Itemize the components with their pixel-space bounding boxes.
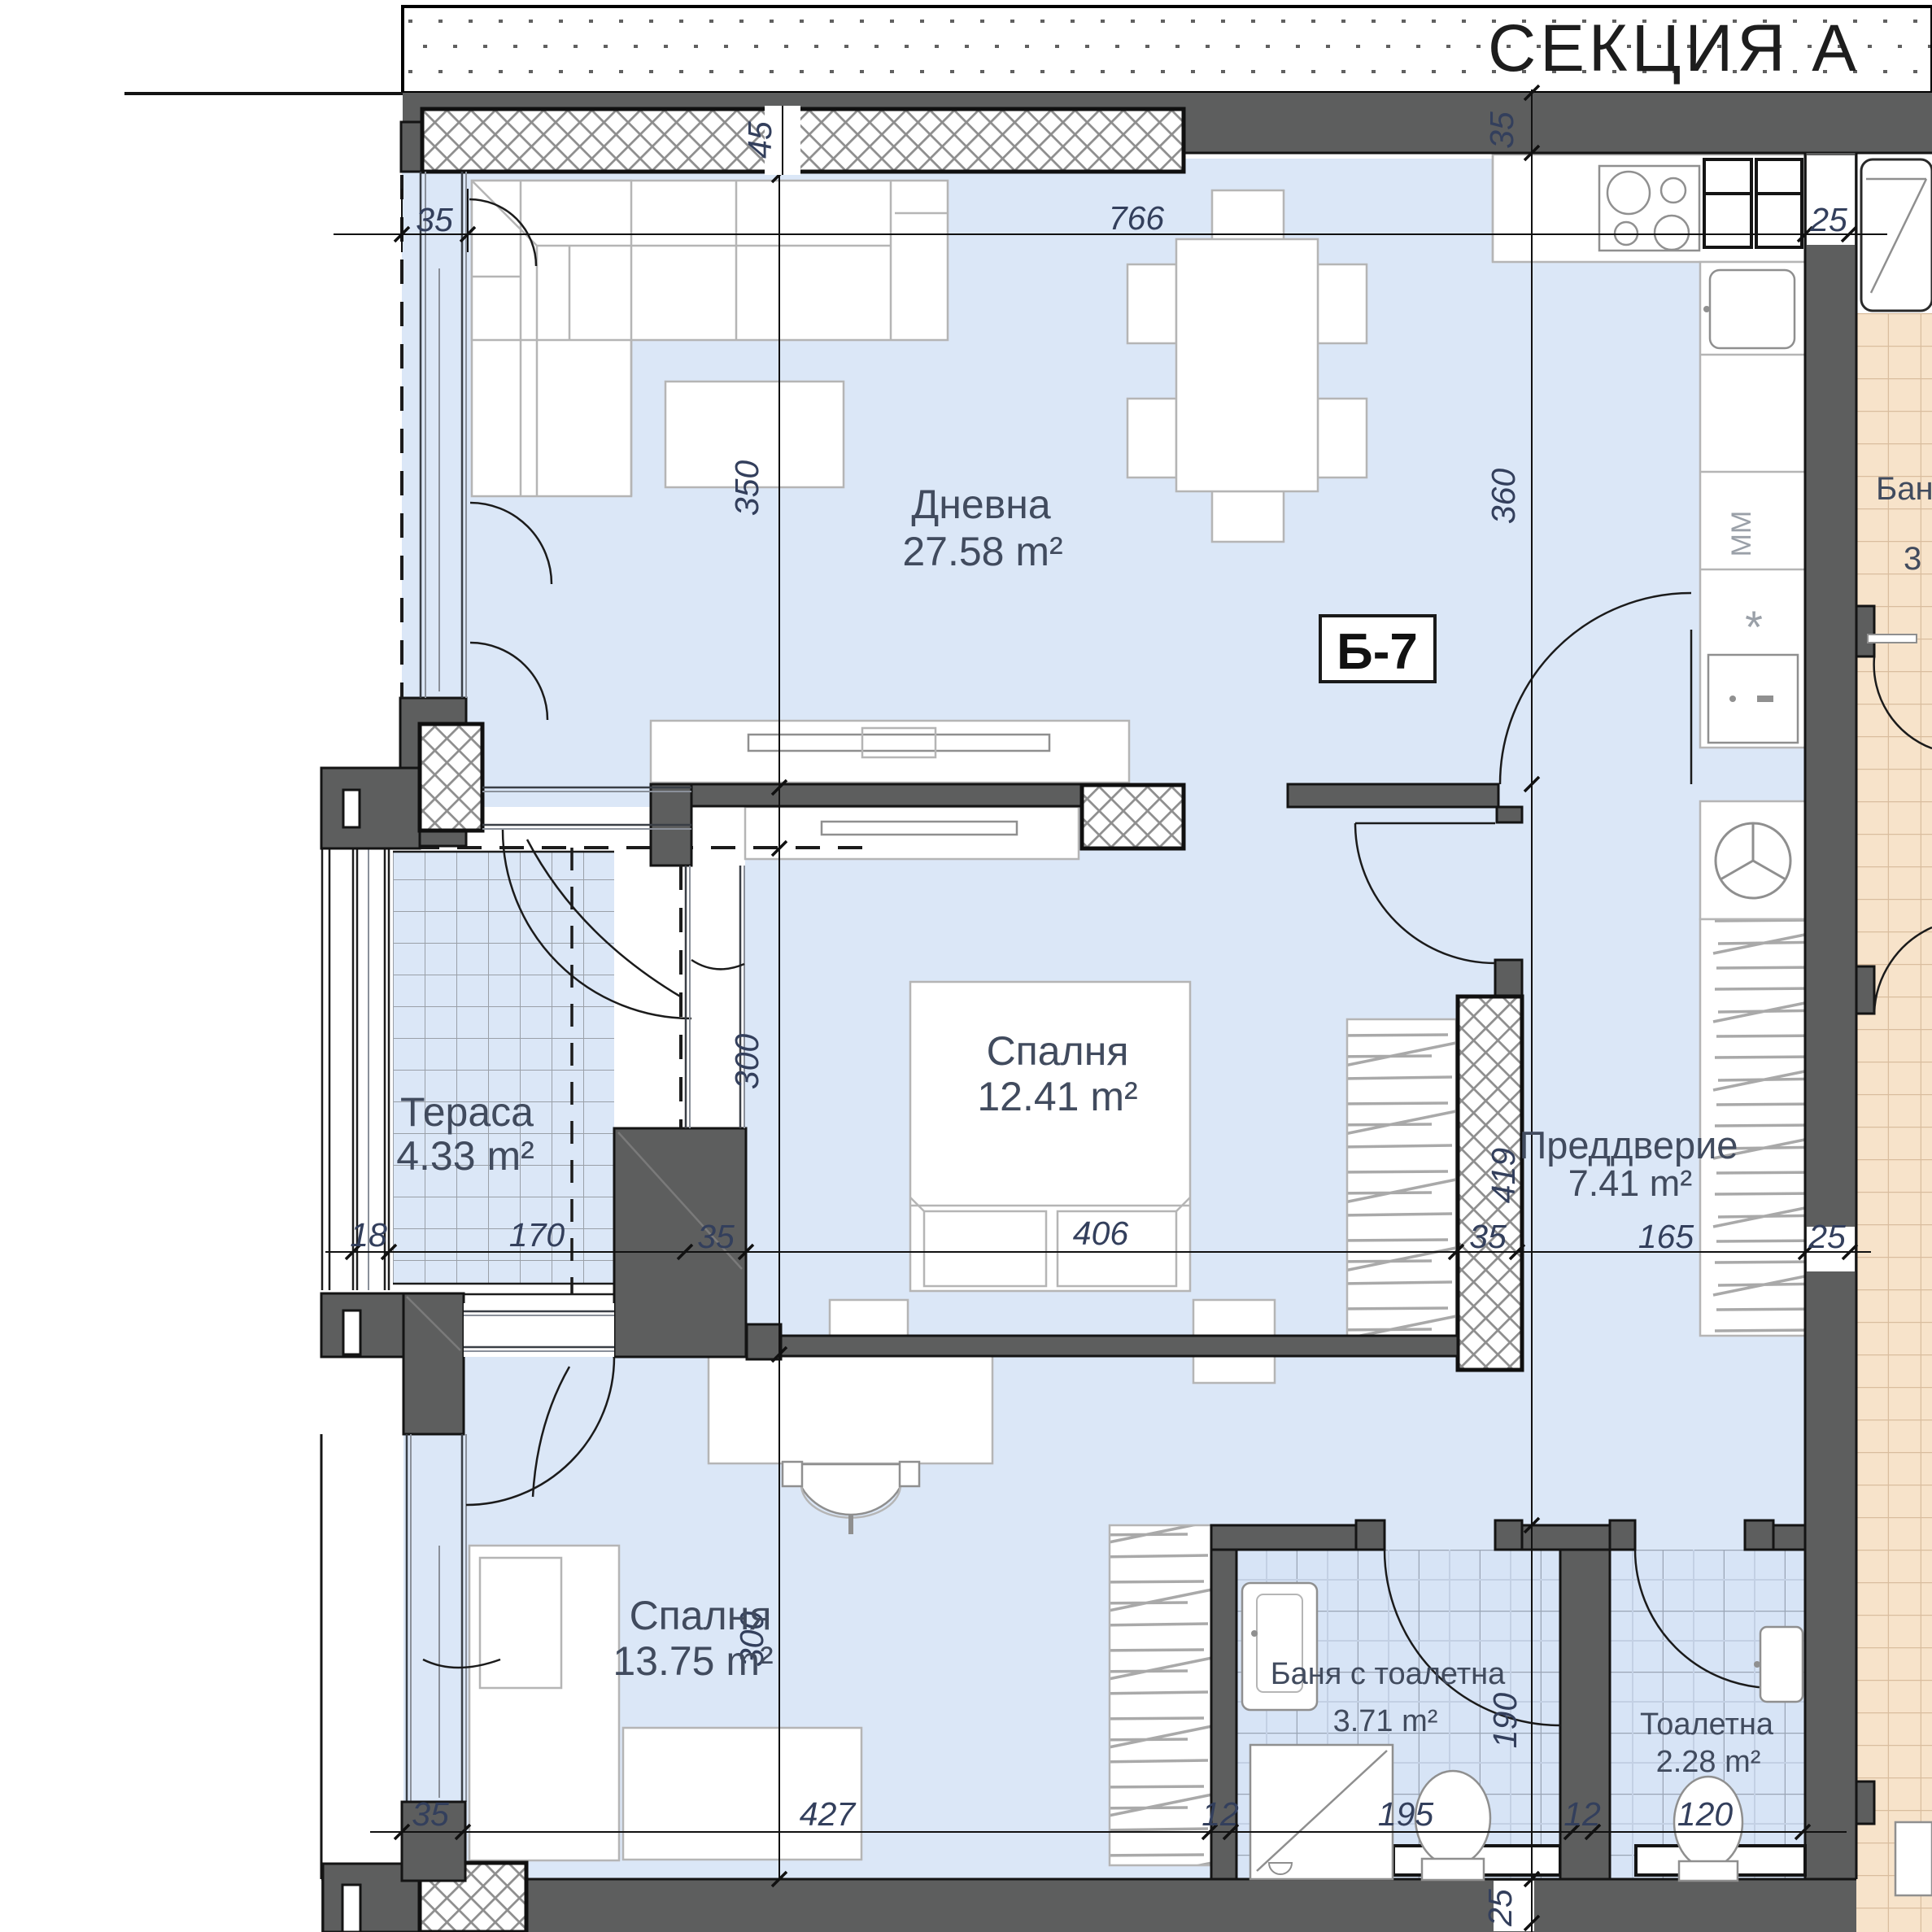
svg-text:406: 406 (1073, 1215, 1129, 1252)
svg-text:25: 25 (1809, 201, 1847, 238)
svg-text:195: 195 (1378, 1795, 1434, 1833)
svg-text:Б-7: Б-7 (1337, 624, 1418, 680)
svg-text:25: 25 (1481, 1889, 1519, 1927)
svg-text:170: 170 (509, 1216, 565, 1254)
svg-text:350: 350 (728, 460, 765, 517)
svg-text:25: 25 (1808, 1218, 1846, 1255)
svg-text:*: * (1745, 601, 1763, 652)
svg-text:12: 12 (1563, 1795, 1601, 1833)
svg-text:360: 360 (1485, 469, 1522, 525)
svg-text:35: 35 (416, 201, 453, 238)
svg-text:165: 165 (1638, 1218, 1694, 1255)
svg-text:190: 190 (1486, 1693, 1524, 1749)
svg-text:120: 120 (1677, 1795, 1734, 1833)
svg-text:12.41 m²: 12.41 m² (977, 1074, 1137, 1119)
svg-text:427: 427 (800, 1795, 857, 1833)
svg-text:СЕКЦИЯ А: СЕКЦИЯ А (1488, 11, 1860, 85)
svg-text:35: 35 (1469, 1218, 1507, 1255)
svg-text:45: 45 (741, 121, 778, 159)
svg-text:419: 419 (1485, 1148, 1522, 1203)
svg-text:Баня: Баня (1876, 471, 1932, 507)
svg-text:7.41 m²: 7.41 m² (1568, 1162, 1693, 1204)
svg-text:13.75 m²: 13.75 m² (613, 1638, 773, 1684)
svg-text:3.71 m²: 3.71 m² (1333, 1704, 1438, 1738)
svg-text:Спалня: Спалня (987, 1028, 1129, 1074)
svg-text:35: 35 (697, 1218, 735, 1255)
svg-text:35: 35 (412, 1795, 449, 1833)
svg-text:Дневна: Дневна (911, 482, 1050, 527)
svg-text:2.28 m²: 2.28 m² (1656, 1745, 1761, 1779)
svg-text:12: 12 (1202, 1795, 1239, 1833)
svg-text:4.33 m²: 4.33 m² (396, 1133, 534, 1179)
svg-text:766: 766 (1109, 199, 1165, 237)
svg-text:MM: MM (1726, 511, 1757, 557)
svg-text:3: 3 (1904, 541, 1921, 577)
svg-text:27.58 m²: 27.58 m² (902, 529, 1062, 574)
svg-text:300: 300 (728, 1034, 765, 1090)
svg-text:Тоалетна: Тоалетна (1640, 1707, 1774, 1742)
svg-text:35: 35 (1483, 111, 1520, 149)
svg-text:Преддверие: Преддверие (1520, 1123, 1738, 1167)
svg-text:Баня с тоалетна: Баня с тоалетна (1271, 1657, 1506, 1691)
svg-text:18: 18 (350, 1216, 387, 1254)
svg-text:Спалня: Спалня (630, 1593, 772, 1638)
svg-text:Тераса: Тераса (400, 1089, 534, 1135)
